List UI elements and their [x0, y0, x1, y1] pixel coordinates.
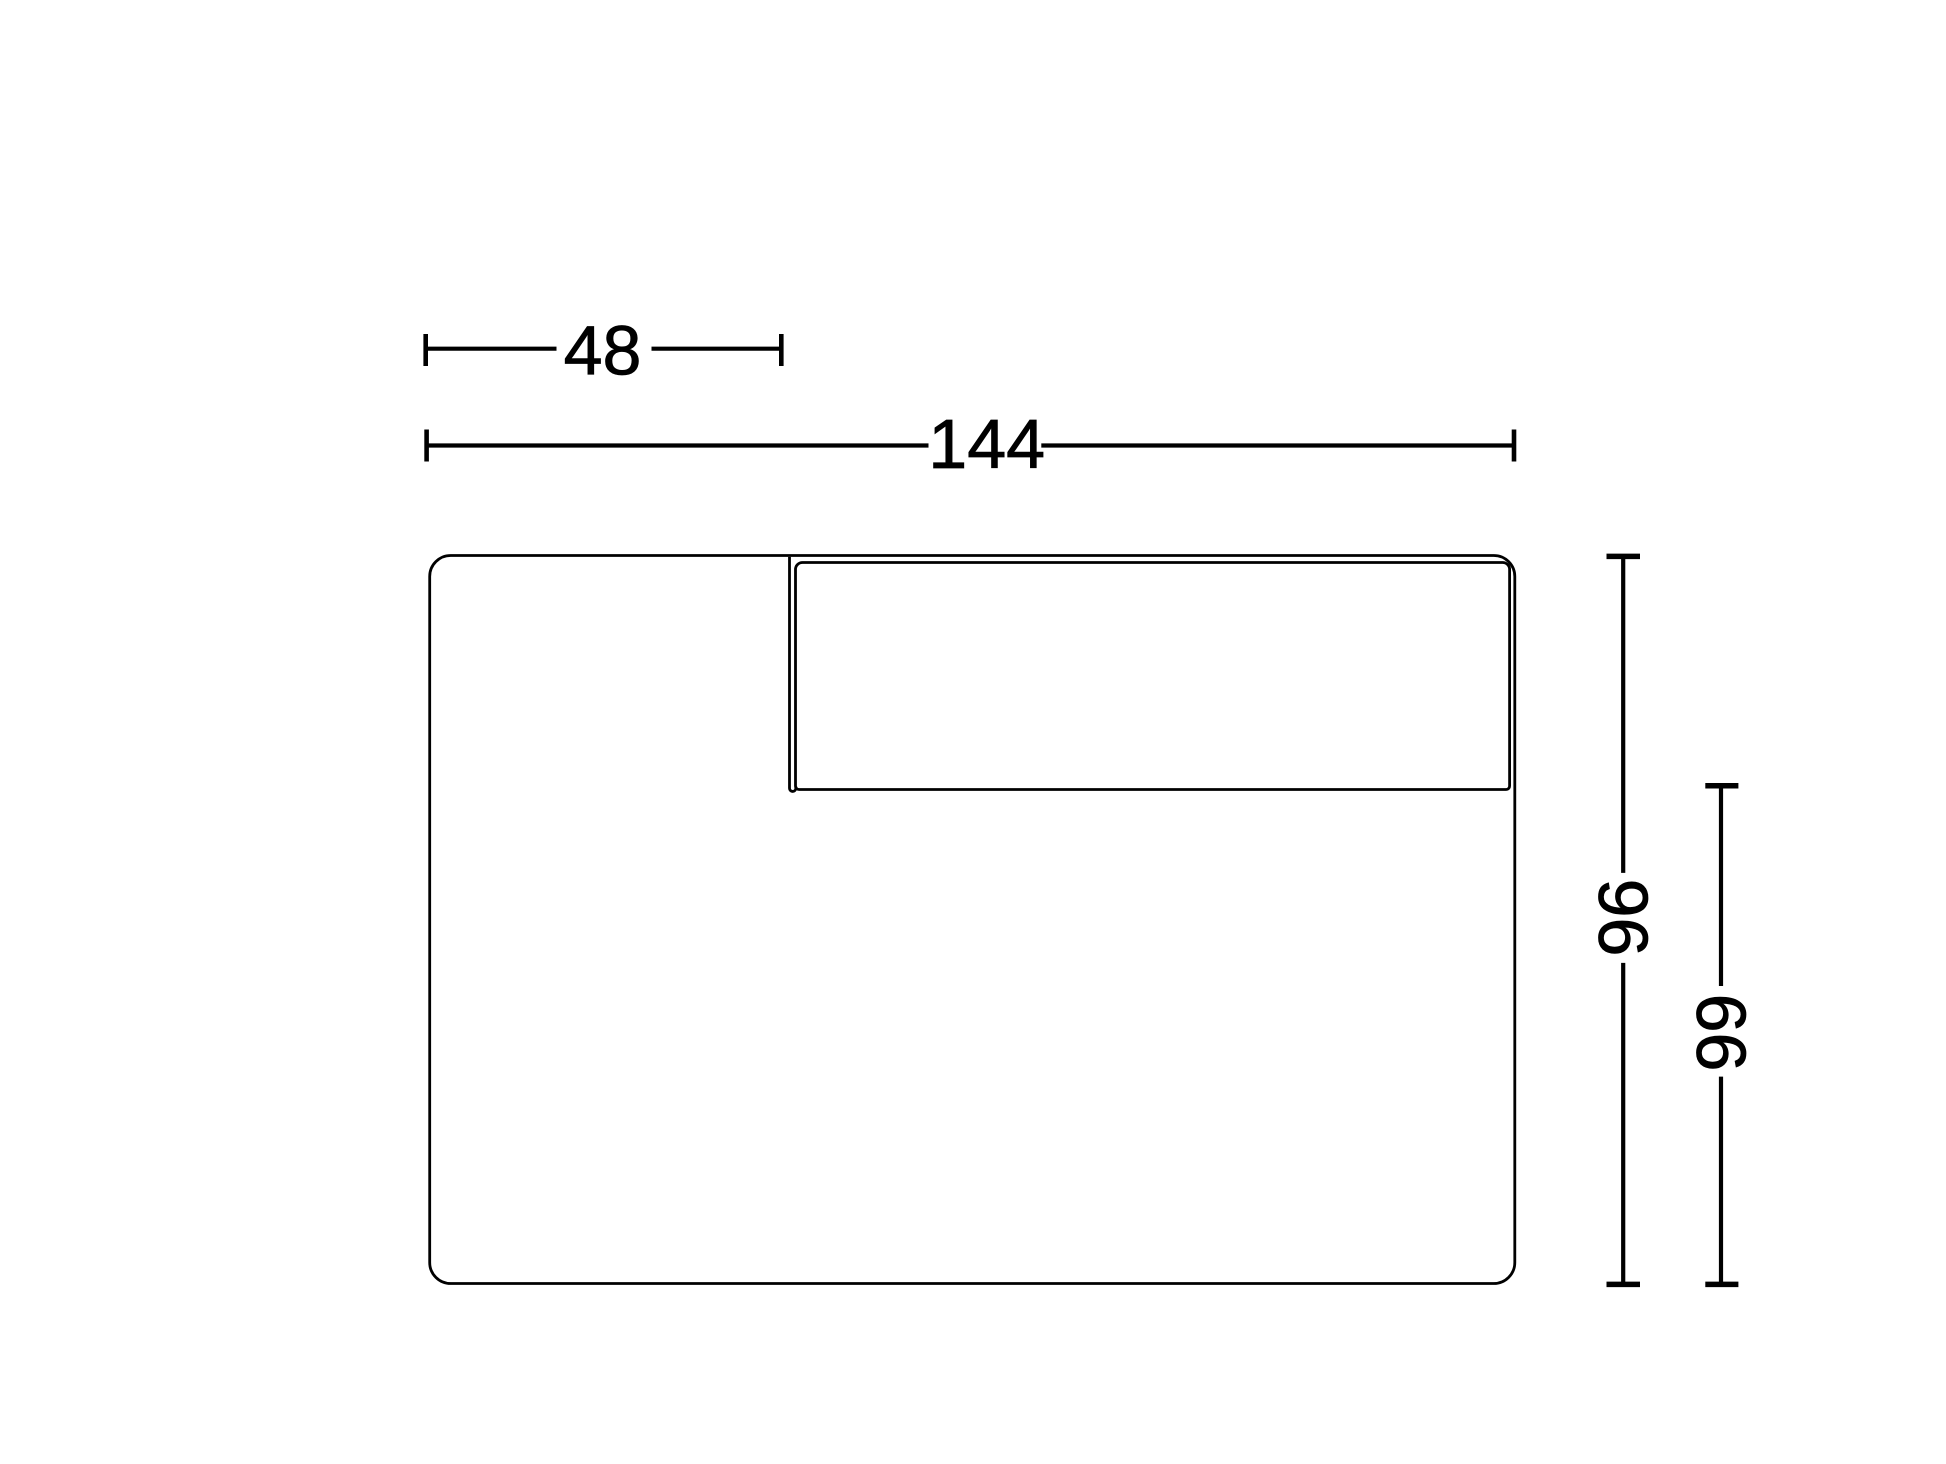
svg-text:96: 96	[1584, 879, 1662, 957]
svg-text:48: 48	[564, 312, 642, 390]
svg-text:144: 144	[928, 405, 1045, 483]
svg-text:66: 66	[1682, 994, 1760, 1072]
